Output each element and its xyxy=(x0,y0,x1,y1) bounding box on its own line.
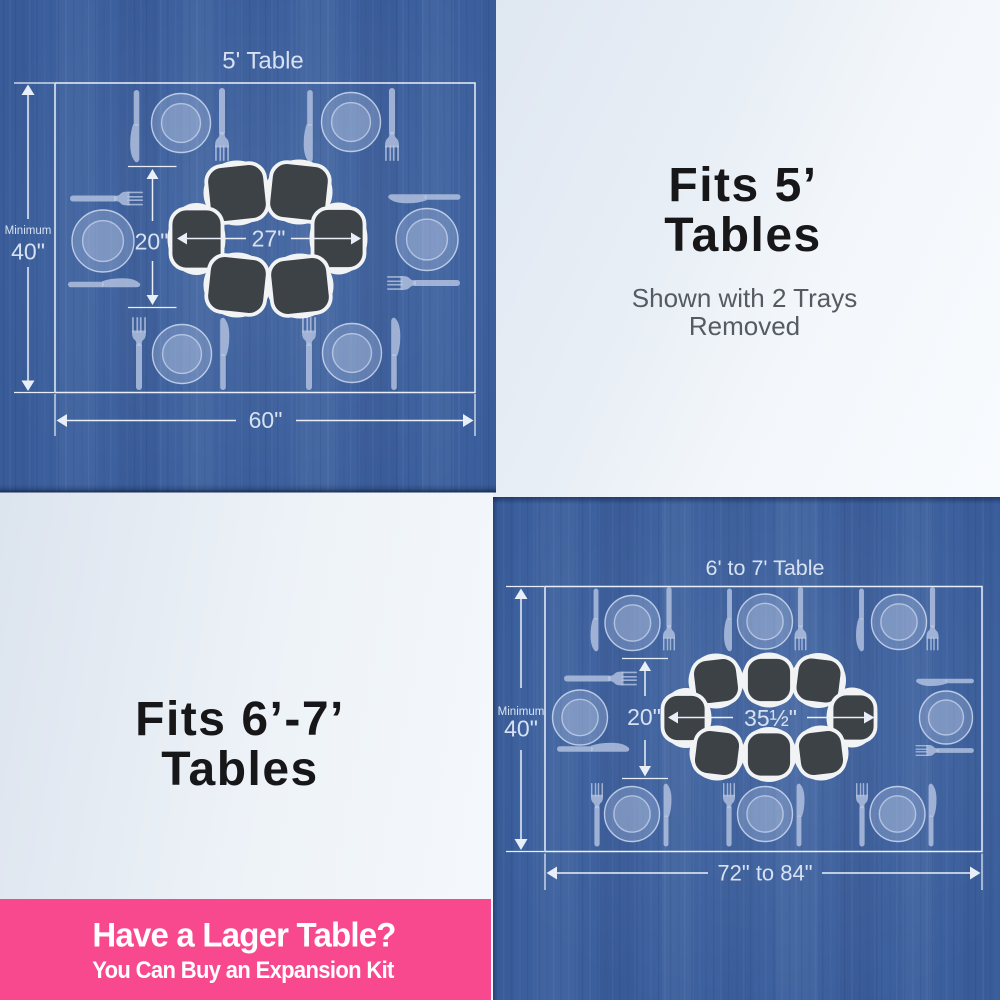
svg-text:Minimum: Minimum xyxy=(5,225,52,237)
svg-text:40": 40" xyxy=(11,239,45,265)
svg-text:27": 27" xyxy=(252,226,286,252)
svg-text:5' Table: 5' Table xyxy=(222,48,304,75)
svg-text:60": 60" xyxy=(249,407,283,433)
svg-text:You Can Buy an Expansion Kit: You Can Buy an Expansion Kit xyxy=(92,955,394,982)
svg-text:20": 20" xyxy=(135,229,169,255)
svg-text:72" to 84": 72" to 84" xyxy=(717,861,812,886)
svg-text:40": 40" xyxy=(504,716,538,742)
svg-text:6' to 7' Table: 6' to 7' Table xyxy=(706,556,825,580)
svg-text:35½": 35½" xyxy=(744,705,797,731)
svg-text:20": 20" xyxy=(627,704,661,730)
svg-text:Have a Lager Table?: Have a Lager Table? xyxy=(92,915,395,954)
